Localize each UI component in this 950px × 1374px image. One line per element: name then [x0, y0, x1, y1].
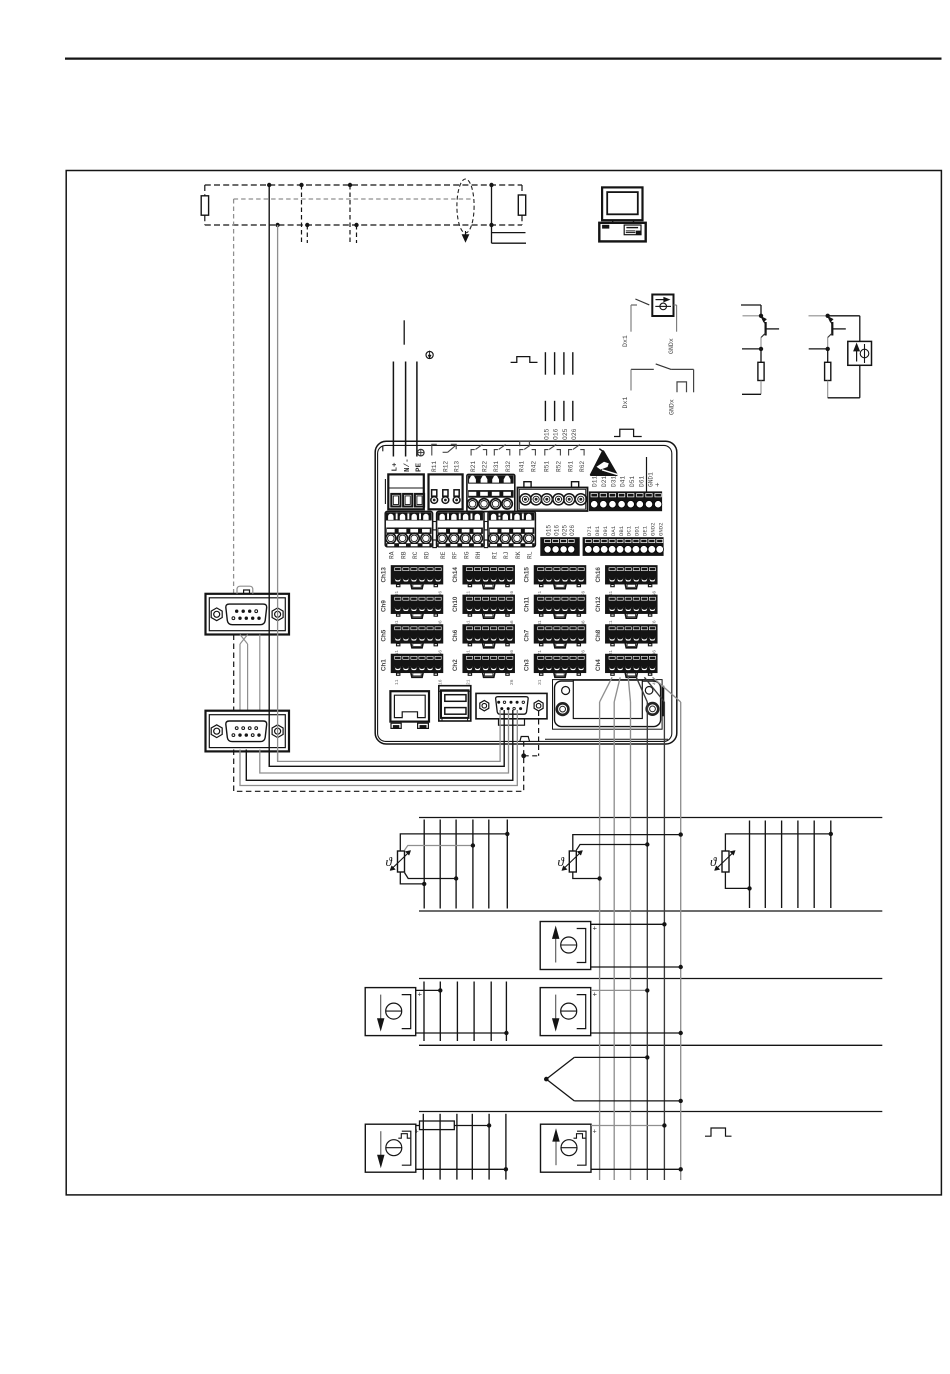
svg-text:O16: O16 — [553, 525, 560, 536]
svg-text:+: + — [593, 1129, 597, 1137]
svg-text:Ch7: Ch7 — [524, 629, 531, 641]
svg-text:RI: RI — [491, 551, 498, 559]
svg-text:DA1: DA1 — [610, 525, 617, 536]
svg-text:RJ: RJ — [503, 552, 510, 559]
svg-text:Ch3: Ch3 — [524, 659, 531, 671]
svg-text:ϑ: ϑ — [558, 854, 565, 869]
svg-text:O15: O15 — [545, 525, 552, 536]
svg-text:11: 11 — [394, 679, 400, 685]
svg-text:GNDx: GNDx — [668, 338, 675, 354]
svg-text:D51: D51 — [629, 476, 636, 487]
svg-text:+: + — [593, 926, 598, 934]
svg-text:D61: D61 — [638, 476, 645, 487]
svg-text:Ch11: Ch11 — [524, 596, 531, 612]
svg-text:Ch9: Ch9 — [381, 600, 388, 612]
svg-text:R62: R62 — [579, 461, 586, 472]
svg-text:+: + — [415, 1129, 419, 1137]
svg-text:R61: R61 — [567, 461, 574, 472]
svg-text:Ch13: Ch13 — [381, 567, 388, 583]
svg-text:ϑ: ϑ — [386, 854, 393, 869]
svg-text:DD1: DD1 — [634, 525, 641, 536]
svg-text:Ch8: Ch8 — [595, 629, 602, 641]
svg-text:Ch12: Ch12 — [595, 596, 602, 612]
svg-text:DC1: DC1 — [626, 525, 633, 536]
svg-text:GND2: GND2 — [657, 523, 664, 536]
svg-text:RL: RL — [527, 551, 534, 559]
svg-text:+: + — [593, 992, 598, 1000]
svg-text:RH: RH — [475, 551, 482, 559]
svg-text:ϑ: ϑ — [710, 854, 717, 869]
svg-text:D71: D71 — [586, 525, 593, 536]
svg-text:Ch4: Ch4 — [595, 659, 602, 671]
svg-text:RF: RF — [452, 551, 459, 559]
svg-text:O25: O25 — [562, 428, 569, 440]
svg-text:RD: RD — [424, 551, 431, 559]
svg-text:Ch1: Ch1 — [381, 659, 388, 671]
svg-text:+: + — [418, 992, 423, 1000]
svg-text:O26: O26 — [569, 525, 576, 536]
svg-text:R12: R12 — [442, 461, 449, 472]
svg-text:L+: L+ — [392, 462, 400, 472]
svg-text:Ch15: Ch15 — [524, 567, 531, 583]
svg-text:D81: D81 — [594, 525, 601, 536]
svg-text:Dx1: Dx1 — [622, 335, 629, 347]
svg-text:R13: R13 — [454, 461, 461, 472]
svg-text:N/-: N/- — [404, 458, 412, 472]
svg-text:D41: D41 — [620, 476, 627, 487]
svg-text:+: + — [654, 482, 662, 487]
svg-text:O25: O25 — [561, 525, 568, 536]
svg-text:DE1: DE1 — [642, 525, 649, 536]
svg-text:Ch5: Ch5 — [381, 629, 388, 641]
svg-text:R51: R51 — [544, 461, 551, 472]
svg-text:Ch14: Ch14 — [452, 567, 459, 583]
svg-text:DB1: DB1 — [618, 525, 625, 536]
svg-text:RC: RC — [412, 551, 419, 559]
svg-text:GND2: GND2 — [650, 523, 657, 536]
svg-text:GNDx: GNDx — [669, 399, 676, 415]
svg-text:R32: R32 — [505, 461, 512, 472]
svg-text:RA: RA — [389, 551, 396, 559]
svg-text:O16: O16 — [553, 428, 560, 440]
svg-text:R21: R21 — [470, 461, 477, 472]
svg-text:RK: RK — [515, 551, 522, 559]
svg-text:R11: R11 — [431, 461, 438, 472]
svg-text:R31: R31 — [493, 461, 500, 472]
svg-text:O15: O15 — [544, 428, 551, 440]
svg-text:R52: R52 — [555, 461, 562, 472]
svg-text:D21: D21 — [601, 476, 608, 487]
svg-text:21: 21 — [466, 679, 472, 685]
svg-text:O26: O26 — [571, 428, 578, 440]
svg-text:R41: R41 — [519, 461, 526, 472]
svg-text:RB: RB — [400, 551, 407, 559]
svg-text:Ch16: Ch16 — [595, 567, 602, 583]
svg-text:RE: RE — [440, 551, 447, 559]
svg-text:Ch6: Ch6 — [452, 629, 459, 641]
svg-text:R42: R42 — [530, 461, 537, 472]
svg-text:26: 26 — [509, 679, 515, 685]
svg-text:RG: RG — [463, 551, 470, 559]
svg-text:D11: D11 — [592, 476, 599, 487]
svg-text:PE: PE — [415, 462, 423, 472]
svg-text:31: 31 — [537, 679, 543, 685]
svg-text:Ch10: Ch10 — [452, 596, 459, 612]
svg-text:D31: D31 — [610, 476, 617, 487]
svg-text:R22: R22 — [482, 461, 489, 472]
svg-text:16: 16 — [437, 679, 443, 685]
svg-text:D91: D91 — [602, 525, 609, 536]
svg-text:Ch2: Ch2 — [452, 659, 459, 671]
svg-text:Dx1: Dx1 — [622, 397, 629, 409]
